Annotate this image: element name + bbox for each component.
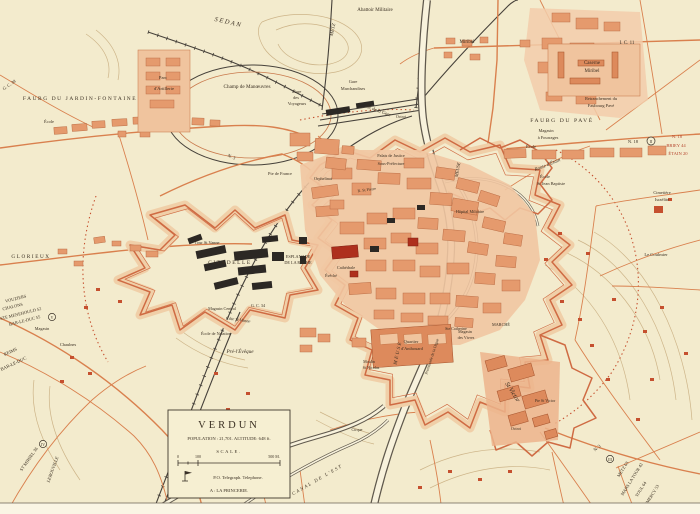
label-orphelinat: Orphelinat [314, 176, 333, 181]
label-marche: MARCHÉ [492, 322, 510, 327]
label-gare-marchandises: Gare [349, 79, 358, 84]
legend-tick-500: 500 M. [268, 454, 280, 459]
label-pre-leveque: Pré-l'Évêque [225, 347, 254, 355]
label-ic11: I. C. 11 [620, 41, 635, 46]
svg-text:DE LA ROCHE: DE LA ROCHE [284, 260, 312, 265]
legend-note: A : LA PRINCERIE. [210, 488, 249, 493]
label-magasin-west: Magasin [35, 326, 50, 331]
label-quartier-anthouard: Quartier [404, 339, 419, 344]
svg-text:des: des [293, 95, 299, 100]
label-n18-west: N. 18 [628, 139, 639, 144]
label-moulin-st-nicolas: Moulin [363, 359, 375, 364]
label-ecole-jf: École [44, 119, 54, 124]
svg-text:Faubourg Pavé: Faubourg Pavé [588, 103, 614, 108]
label-hopital-militaire: Hôpital Militaire [456, 209, 484, 214]
label-faubg-jardin-fontaine: FAUBG DU JARDIN-FONTAINE [23, 96, 137, 102]
label-ecole-pave: École [526, 144, 536, 149]
legend-scale-label: SCALE. [216, 449, 241, 454]
svg-text:St Jean Baptiste: St Jean Baptiste [537, 181, 565, 186]
svg-text:V: V [51, 316, 54, 320]
label-eveche: Évêché [325, 273, 337, 278]
svg-text:à Fourrages: à Fourrages [538, 135, 559, 140]
label-cathedrale: Cathédrale [337, 265, 355, 270]
label-pte-st-victor: Pte St Victor [535, 398, 556, 403]
label-champ-de-manoeuvres: Champ de Manœuvres [224, 84, 271, 90]
legend-box: VERDUN POPULATION : 21,701. ALTITUDE: 64… [168, 410, 290, 498]
label-ste-catherine: Ste Catherine [445, 326, 467, 331]
legend-title: VERDUN [198, 420, 260, 431]
hotel-de-ville-building [408, 238, 418, 246]
svg-text:St Nicolas: St Nicolas [363, 365, 380, 370]
svg-text:IV: IV [41, 443, 45, 447]
svg-text:Miribel: Miribel [585, 69, 601, 74]
label-chaulnes: Chaulnes [60, 342, 77, 347]
label-esplanade: ESPLANADE [286, 254, 311, 259]
label-st-jean: École [540, 174, 550, 179]
label-palais-justice: Palais de Justice [377, 153, 405, 158]
label-caserne-miribel: Caserne [584, 61, 601, 66]
legend-symbols: P.O. Telegraph. Telephone. [213, 475, 262, 480]
label-glorieux: GLORIEUX [11, 254, 50, 260]
label-magasin-fourrages: Magasin [538, 128, 554, 133]
label-retranchement: Retranchement du [585, 96, 618, 101]
cathedral-building [332, 245, 359, 259]
label-octroi-south: Octroi [511, 426, 522, 431]
label-faubg-pave: FAUBG DU PAVÉ [530, 116, 594, 124]
label-citadelle: CITADELLE [208, 260, 252, 266]
label-miribel-road: Miribel [460, 40, 476, 45]
svg-text:Israélite: Israélite [655, 197, 669, 202]
label-cimetiere: Cimetière [653, 190, 670, 195]
label-gc34: G. C. 34 [251, 303, 266, 308]
label-abattoir: Abattoir Militaire [357, 8, 393, 13]
legend-tick-100: 100 [195, 454, 201, 459]
verdun-map: SEDAN Abattoir Militaire METZ Miribel I.… [0, 0, 700, 514]
label-tour-st-vanne: Tour St Vanne [195, 240, 220, 245]
svg-text:d'Anthouard: d'Anthouard [401, 346, 424, 351]
label-etain20: ÉTAIN 20 [668, 151, 688, 156]
label-sous-prefecture: Sous-Préfecture [378, 161, 405, 166]
label-gare-voyageurs: Gare [293, 89, 302, 94]
svg-text:d'Artillerie: d'Artillerie [154, 86, 174, 91]
map-margin [0, 503, 700, 514]
label-octroi-north: Octroi [396, 114, 407, 119]
label-magasin-central: Magasin Central [208, 306, 237, 311]
cimetiere-israelite-area [654, 206, 663, 213]
svg-text:des Vivres: des Vivres [458, 335, 475, 340]
label-le-coulmier: Le Coulmier [644, 252, 668, 257]
label-ecole-natation: École de Natation [201, 331, 232, 336]
label-cirque: Cirque [352, 427, 363, 432]
label-parc-artillerie: Parc [159, 75, 167, 80]
legend-tick-0: 0 [177, 454, 179, 459]
svg-text:Marchandises: Marchandises [341, 86, 366, 91]
label-briey: BRIEY 44 [666, 143, 686, 148]
label-n18-east: N. 18 [672, 134, 683, 139]
svg-text:Voyageurs: Voyageurs [288, 101, 307, 106]
label-porte-de-france: Pte de France [268, 171, 292, 176]
